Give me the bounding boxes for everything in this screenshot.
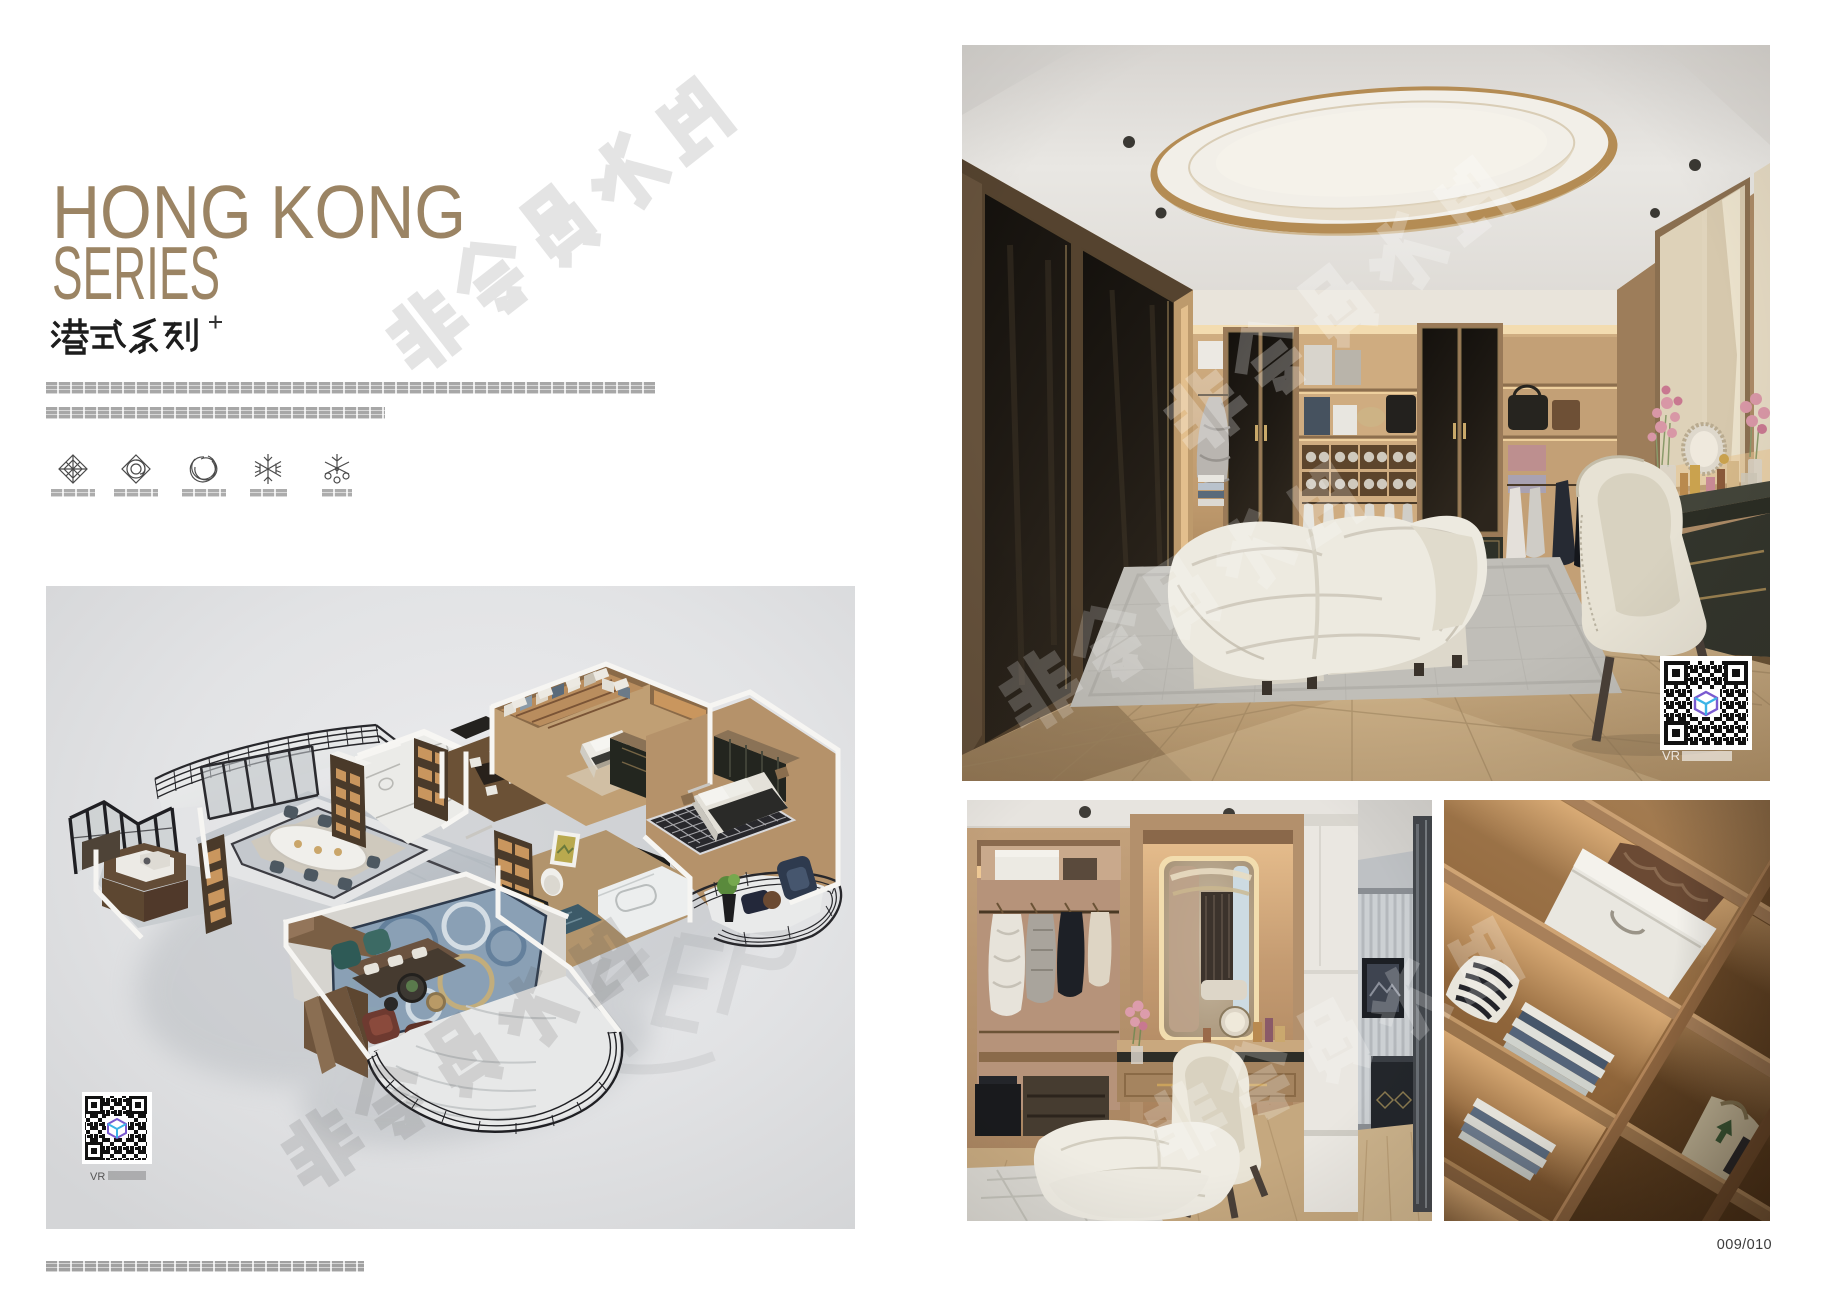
svg-text:VR: VR: [90, 1171, 105, 1183]
svg-text:VR: VR: [1662, 748, 1680, 763]
svg-text:SERIES: SERIES: [52, 231, 220, 315]
